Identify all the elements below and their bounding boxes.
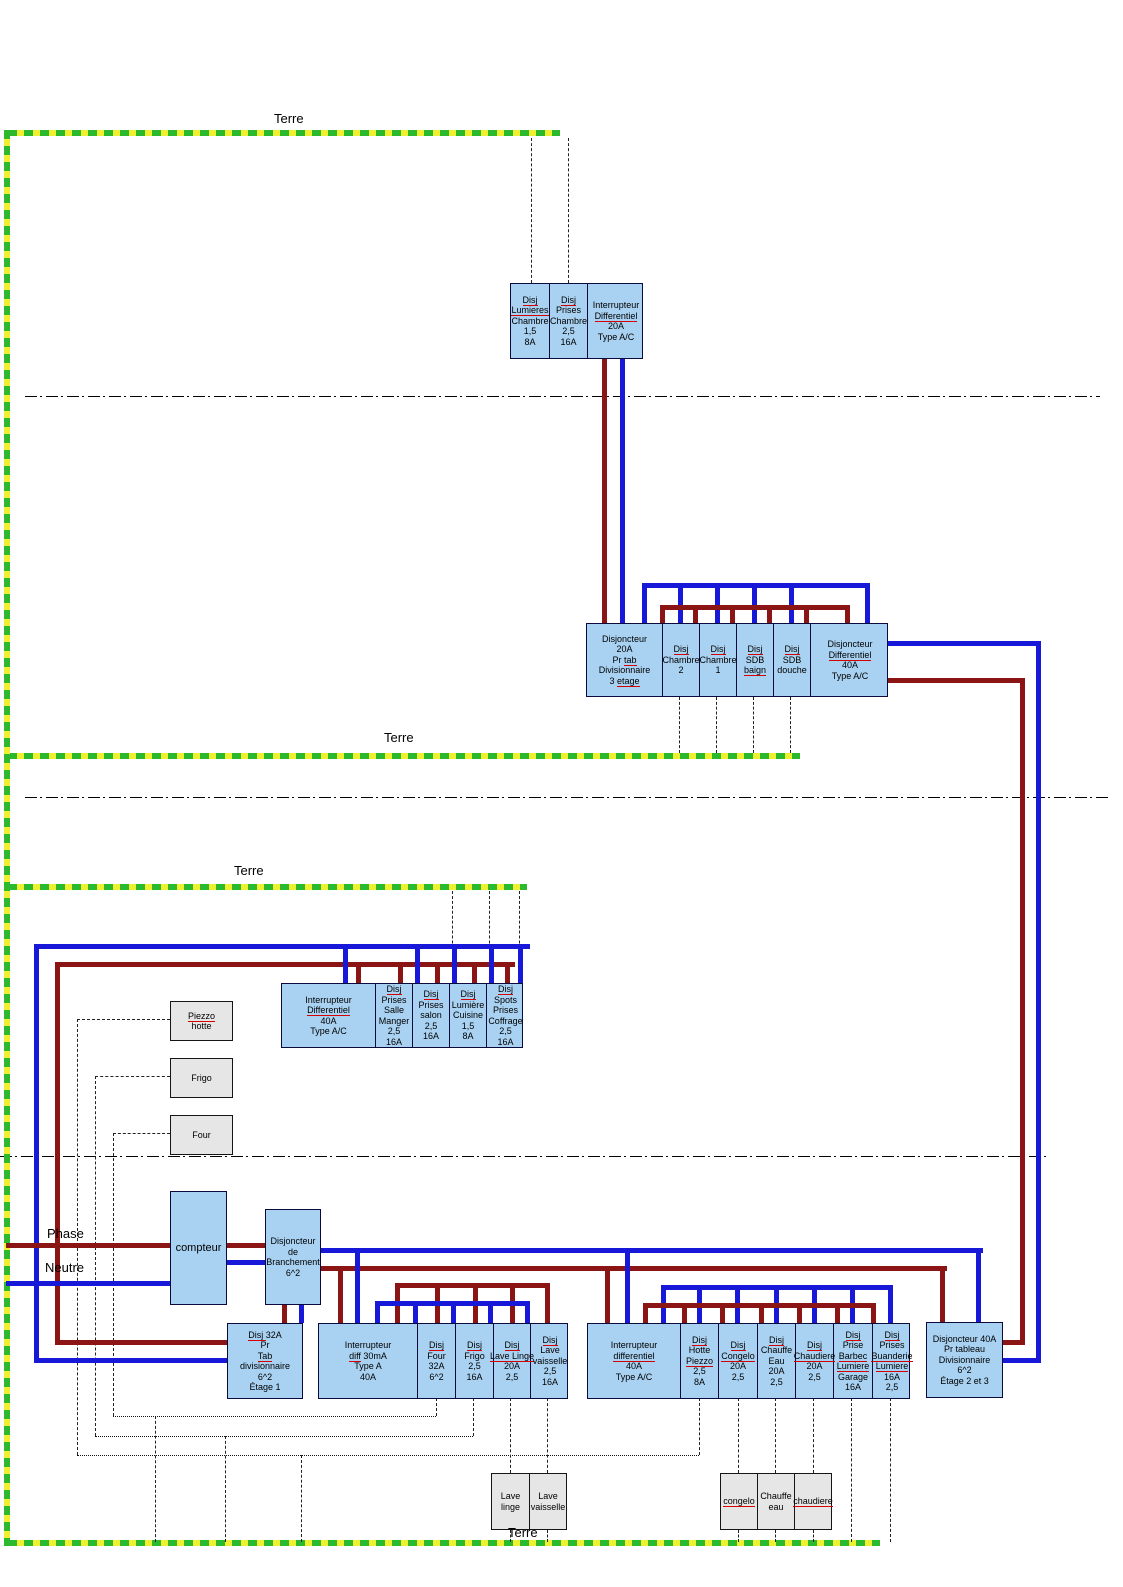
phase-wire: [871, 1308, 876, 1323]
neutre-wire: [1003, 1358, 1041, 1363]
neutre-wire: [299, 1305, 304, 1323]
earth-dashed-line: [547, 1530, 548, 1542]
lave-vaisselle-appliance: Lavevaisselle: [530, 1474, 566, 1529]
disj-lumieres-chambre: DisjLumieresChambre1,58A: [511, 284, 550, 358]
etage23-feed-box: Disjoncteur 40APr tableauDivisionnaire6^…: [926, 1322, 1003, 1398]
utility-panel: Interrupteurdifferentiel40AType A/CDisjH…: [587, 1323, 910, 1399]
neutre-wire: [6, 1281, 170, 1286]
phase-wire: [1003, 1340, 1025, 1345]
earth-dashed-line: [113, 1133, 170, 1134]
interrupteur-differentiel-40a-rdc: InterrupteurDifferentiel40AType A/C: [282, 984, 376, 1047]
earth-dashed-line: [890, 1398, 891, 1542]
frigo-appliance: Frigo: [171, 1059, 232, 1097]
phase-wire: [1020, 678, 1025, 1345]
neutre-wire: [642, 588, 647, 623]
four-appliance: Four: [171, 1116, 232, 1154]
earth-dashed-line: [753, 697, 754, 753]
phase-wire: [505, 967, 510, 983]
floor-divider-line: [25, 396, 1100, 397]
earth-dashed-line: [716, 697, 717, 753]
terre-earth-bus: [8, 130, 560, 136]
earth-dashed-line: [775, 1398, 776, 1473]
terre-label-middle: Terre: [384, 731, 414, 745]
interrupteur-diff-30ma: Interrupteurdiff 30mAType A40A: [319, 1324, 418, 1398]
disj-chambre-1: DisjChambre1: [700, 624, 737, 696]
four-box: Four: [170, 1115, 233, 1155]
neutre-wire: [865, 588, 870, 623]
phase-wire: [435, 967, 440, 983]
terre-earth-bus: [4, 130, 10, 1546]
earth-dashed-line: [95, 1076, 96, 1436]
terre-earth-bus: [8, 884, 527, 890]
congelo-appliance: congelo: [721, 1474, 758, 1529]
neutre-wire: [227, 1260, 265, 1265]
neutre-wire: [489, 949, 494, 983]
phase-label: Phase: [47, 1227, 84, 1241]
phase-wire: [55, 1340, 227, 1345]
phase-wire: [888, 678, 1025, 683]
earth-dashed-line: [547, 1398, 548, 1473]
disjoncteur-differentiel-40a: DisjoncteurDifferentiel40AType A/C: [811, 624, 889, 696]
disj-32a-pr-tab-divisionnaire-etage1: Disj 32APrTabdivisionnaire6^2Étage 1: [228, 1324, 302, 1398]
neutre-wire: [888, 641, 1041, 646]
phase-wire: [338, 1271, 343, 1323]
earth-dashed-line: [851, 1398, 852, 1542]
earth-dashed-line: [436, 1398, 437, 1416]
lave-appliance-panel: LavelingeLavevaisselle: [491, 1473, 567, 1530]
earth-dashed-line: [510, 1398, 511, 1473]
disj-prises-chambre: DisjPrisesChambre2,516A: [550, 284, 588, 358]
disj-sdb-baignoire: DisjSDBbaign: [737, 624, 774, 696]
disjoncteur-de-branchement: DisjoncteurdeBranchement6^2: [266, 1210, 320, 1304]
neutre-wire: [415, 949, 420, 983]
phase-wire: [759, 1308, 764, 1323]
electrical-wiring-diagram: DisjLumieresChambre1,58ADisjPrisesChambr…: [0, 0, 1123, 1587]
terre-earth-bus: [8, 1540, 880, 1546]
chaudiere-appliance: chaudiere: [795, 1474, 831, 1529]
neutre-wire: [488, 1306, 493, 1323]
neutre-wire: [375, 1306, 380, 1323]
terre-label-top: Terre: [274, 112, 304, 126]
etage1-feed-box: Disj 32APrTabdivisionnaire6^2Étage 1: [227, 1323, 303, 1399]
earth-dashed-line: [775, 1530, 776, 1542]
chambre3-panel: DisjLumieresChambre1,58ADisjPrisesChambr…: [510, 283, 643, 359]
disj-spots-prises-coffrage: DisjSpotsPrisesCoffrage2,516A: [487, 984, 524, 1047]
floor-divider-line: [0, 1156, 1050, 1157]
piezzo-hotte-box: Piezzohotte: [170, 1001, 233, 1041]
neutre-wire: [525, 1306, 530, 1323]
phase-wire: [835, 1308, 840, 1323]
neutre-wire: [413, 1306, 418, 1323]
earth-dashed-line: [155, 1416, 156, 1542]
phase-wire: [227, 1243, 265, 1248]
neutre-label: Neutre: [45, 1261, 84, 1275]
phase-wire: [321, 1266, 947, 1271]
etage1-appliance-panel: Interrupteurdiff 30mAType A40ADisjFour32…: [318, 1323, 568, 1399]
earth-dashed-line: [813, 1530, 814, 1542]
disjoncteur-20a-pr-tab-divisionnaire: Disjoncteur20APr tabDivisionnaire3 etage: [587, 624, 663, 696]
earth-dashed-line: [568, 138, 569, 283]
disj-prise-barbec-lumiere-garage: DisjPriseBarbecLumiereGarage16A: [834, 1324, 873, 1398]
interrupteur-differentiel-40a-utility: Interrupteurdifferentiel40AType A/C: [588, 1324, 681, 1398]
earth-dashed-line: [77, 1455, 699, 1456]
disj-prises-buanderie-lumiere: DisjPrisesBuanderieLumiere16A2,5: [873, 1324, 911, 1398]
neutre-wire: [34, 944, 39, 1363]
neutre-wire: [620, 359, 625, 623]
disj-congelo: DisjCongelo20A2,5: [719, 1324, 758, 1398]
phase-wire: [356, 967, 361, 983]
phase-wire: [282, 1305, 287, 1323]
phase-wire: [660, 610, 665, 623]
chauffage-appliance-panel: congeloChauffeeauchaudiere: [720, 1473, 832, 1530]
neutre-wire: [888, 1290, 893, 1323]
neutre-wire: [321, 1248, 983, 1253]
earth-dashed-line: [95, 1436, 473, 1437]
neutre-wire: [452, 949, 457, 983]
disj-frigo: DisjFrigo2,516A: [456, 1324, 494, 1398]
piezzo-hotte-appliance: Piezzohotte: [171, 1002, 232, 1040]
phase-wire: [720, 1308, 725, 1323]
terre-label-rdc: Terre: [234, 864, 264, 878]
neutre-wire: [1036, 641, 1041, 1363]
phase-wire: [605, 1271, 610, 1323]
earth-dashed-line: [531, 138, 532, 283]
phase-wire: [472, 967, 477, 983]
disj-chaudiere: DisjChaudiere20A2,5: [796, 1324, 834, 1398]
etage3-feed-panel: Disjoncteur20APr tabDivisionnaire3 etage…: [586, 623, 888, 697]
phase-wire: [55, 962, 60, 1345]
terre-label-bottom: Terre: [508, 1526, 538, 1540]
phase-wire: [682, 1308, 687, 1323]
disjoncteur-branchement-box: DisjoncteurdeBranchement6^2: [265, 1209, 321, 1305]
chauffe-eau-appliance: Chauffeeau: [758, 1474, 795, 1529]
floor-divider-line: [25, 797, 1110, 798]
phase-wire: [845, 610, 850, 623]
disj-lumiere-cuisine: DisjLumièreCuisine1,58A: [450, 984, 487, 1047]
phase-wire: [660, 605, 850, 610]
phase-wire: [6, 1243, 170, 1248]
phase-wire: [398, 967, 403, 983]
earth-dashed-line: [790, 697, 791, 753]
earth-dashed-line: [679, 697, 680, 753]
phase-wire: [643, 1308, 648, 1323]
disj-hotte-piezzo: DisjHottePiezzo2,58A: [681, 1324, 719, 1398]
lave-linge-appliance: Lavelinge: [492, 1474, 530, 1529]
compteur: compteur: [171, 1192, 226, 1304]
earth-dashed-line: [95, 1076, 170, 1077]
earth-dashed-line: [473, 1398, 474, 1436]
neutre-wire: [976, 1253, 981, 1322]
phase-wire: [55, 962, 515, 967]
earth-dashed-line: [738, 1398, 739, 1473]
neutre-wire: [355, 1253, 360, 1323]
terre-earth-bus: [8, 753, 800, 759]
earth-dashed-line: [699, 1398, 700, 1455]
neutre-wire: [451, 1306, 456, 1323]
disj-sdb-douche: DisjSDBdouche: [774, 624, 811, 696]
phase-wire: [693, 610, 698, 623]
earth-dashed-line: [225, 1436, 226, 1542]
phase-wire: [940, 1271, 945, 1322]
earth-dashed-line: [813, 1398, 814, 1473]
disj-chauffe-eau: DisjChauffeEau20A2,5: [758, 1324, 796, 1398]
earth-dashed-line: [113, 1133, 114, 1416]
neutre-wire: [625, 1253, 630, 1323]
neutre-wire: [34, 1358, 227, 1363]
neutre-wire: [518, 949, 523, 983]
interrupteur-differentiel-20a: InterrupteurDifferentiel20AType A/C: [588, 284, 644, 358]
disj-lave-linge: DisjLave Linge20A2,5: [494, 1324, 531, 1398]
compteur-box: compteur: [170, 1191, 227, 1305]
phase-wire: [804, 610, 809, 623]
disj-prises-salle-manger: DisjPrisesSalleManger2,516A: [376, 984, 413, 1047]
earth-dashed-line: [77, 1019, 170, 1020]
phase-wire: [797, 1308, 802, 1323]
earth-dashed-line: [113, 1416, 436, 1417]
earth-dashed-line: [738, 1530, 739, 1542]
disj-chambre-2: DisjChambre2: [663, 624, 700, 696]
rdc-panel: InterrupteurDifferentiel40AType A/CDisjP…: [281, 983, 523, 1048]
phase-wire: [545, 1288, 550, 1323]
disjoncteur-40a-pr-tableau-etage23: Disjoncteur 40APr tableauDivisionnaire6^…: [927, 1323, 1002, 1397]
phase-wire: [767, 610, 772, 623]
phase-wire: [602, 359, 607, 623]
disj-four: DisjFour32A6^2: [418, 1324, 456, 1398]
disj-lave-vaisselle: DisjLavevaisselle2,516A: [531, 1324, 569, 1398]
frigo-box: Frigo: [170, 1058, 233, 1098]
neutre-wire: [343, 949, 348, 983]
phase-wire: [730, 610, 735, 623]
earth-dashed-line: [301, 1455, 302, 1542]
disj-prises-salon: DisjPrisessalon2,516A: [413, 984, 450, 1047]
